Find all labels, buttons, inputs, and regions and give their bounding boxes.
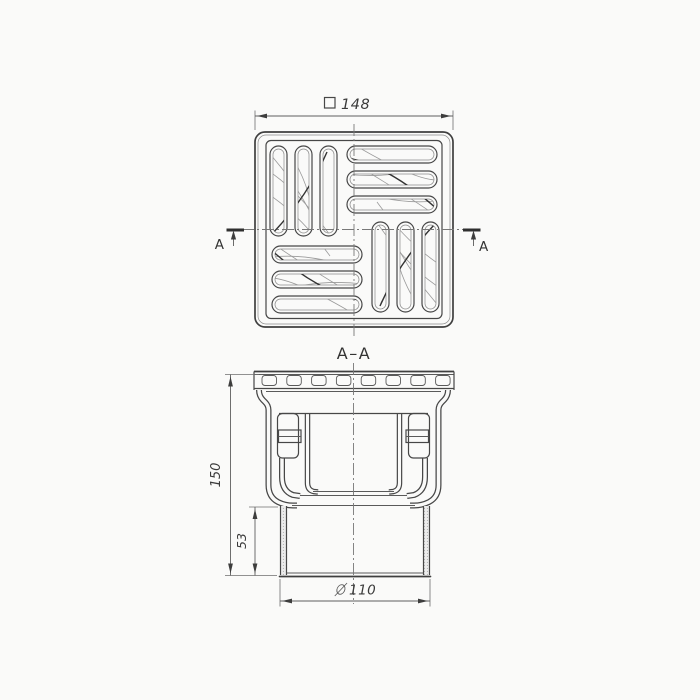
diameter-dimension-value: 110 xyxy=(349,583,376,599)
dim-arrow-left xyxy=(257,114,267,119)
cut-letter-left: A xyxy=(215,237,225,253)
outlet-height-dimension-value: 53 xyxy=(234,533,249,549)
clip-right xyxy=(406,430,429,443)
clip-left xyxy=(279,430,302,443)
dim-arrow-right xyxy=(441,114,451,119)
grate-teeth xyxy=(262,376,450,386)
section-cut-marker-right: A xyxy=(463,230,489,255)
cut-letter-right: A xyxy=(479,239,489,255)
grate-section xyxy=(254,372,454,392)
dimension-diameter-110: 110 xyxy=(280,579,430,607)
view-direction-arrow-left xyxy=(231,231,236,240)
width-dimension-value: 148 xyxy=(341,97,370,113)
section-view: A–A xyxy=(209,344,454,607)
drawing-canvas: 148 A A A–A xyxy=(0,0,700,700)
outlet-pipe xyxy=(280,506,431,577)
section-title: A–A xyxy=(337,344,371,363)
top-view: 148 A A xyxy=(215,97,489,336)
height-dimension-value: 150 xyxy=(209,463,224,488)
technical-drawing: 148 A A A–A xyxy=(0,0,700,700)
dimension-outlet-height-53: 53 xyxy=(234,507,278,576)
hatched-wall-right xyxy=(409,414,430,459)
diameter-symbol xyxy=(335,583,347,596)
hatched-wall-left xyxy=(278,414,299,459)
square-symbol xyxy=(325,98,336,109)
section-cut-marker-left: A xyxy=(215,230,244,253)
view-direction-arrow-right xyxy=(471,231,476,240)
